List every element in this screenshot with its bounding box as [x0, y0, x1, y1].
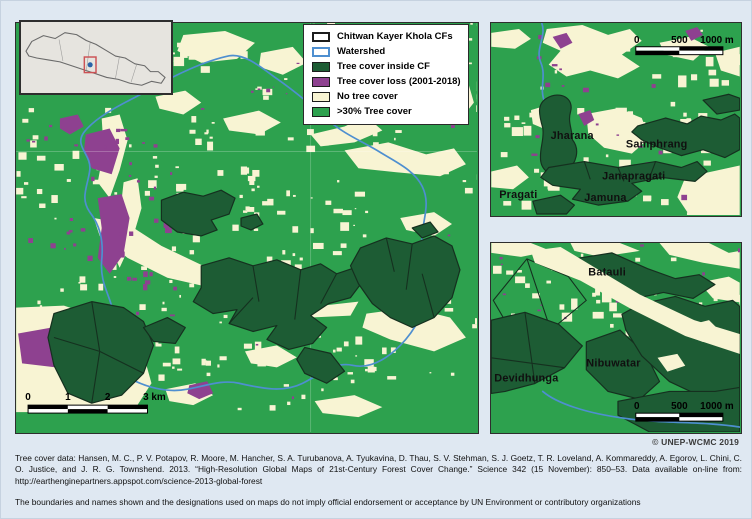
- tree-inside-cf-swatch: [312, 62, 330, 72]
- place-label-batauli: Batauli: [588, 267, 626, 279]
- disclaimer-text: The boundaries and names shown and the d…: [15, 497, 742, 507]
- legend-label: Chitwan Kayer Khola CFs: [337, 32, 453, 42]
- place-label-devidhunga: Devidhunga: [494, 373, 559, 385]
- scale-label: 0: [634, 401, 640, 412]
- legend-item-no-tree: No tree cover: [312, 92, 460, 102]
- tree-loss-swatch: [312, 77, 330, 87]
- place-label-jharana: Jharana: [551, 130, 595, 142]
- place-label-nibuwatar: Nibuwatar: [586, 358, 641, 370]
- scale-label: 500: [671, 401, 688, 412]
- legend-label: >30% Tree cover: [337, 107, 412, 117]
- legend-label: Watershed: [337, 47, 385, 57]
- cf-outline-swatch: [312, 32, 330, 42]
- no-tree-swatch: [312, 92, 330, 102]
- legend: Chitwan Kayer Khola CFs Watershed Tree c…: [303, 24, 469, 125]
- place-label-pragati: Pragati: [499, 189, 537, 201]
- legend-item-watershed: Watershed: [312, 47, 460, 57]
- scale-label: 2: [105, 392, 111, 403]
- place-label-samphrang: Samphrang: [626, 139, 688, 151]
- data-credit-text: Tree cover data: Hansen, M. C., P. V. Po…: [15, 453, 742, 487]
- watershed-swatch: [312, 47, 330, 57]
- place-label-jamuna: Jamuna: [584, 192, 627, 204]
- scale-label: 1000 m: [700, 401, 734, 412]
- study-area-dot: [88, 62, 93, 67]
- scale-label: 1000 m: [700, 35, 734, 46]
- scale-label: 500: [671, 35, 688, 46]
- legend-item-tree-inside-cf: Tree cover inside CF: [312, 62, 460, 72]
- inset-top-canvas: Jharana Samphrang Janapragati Pragati Ja…: [491, 23, 740, 215]
- copyright-notice: © UNEP-WCMC 2019: [652, 437, 739, 447]
- legend-item-tree-loss: Tree cover loss (2001-2018): [312, 77, 460, 87]
- scale-label: 0: [634, 35, 640, 46]
- legend-label: Tree cover loss (2001-2018): [337, 77, 461, 87]
- nepal-locator-canvas: [21, 22, 171, 93]
- inset-map-top: Jharana Samphrang Janapragati Pragati Ja…: [490, 22, 742, 217]
- inset-map-bottom: Batauli Nibuwatar Devidhunga 0 500 1000 …: [490, 242, 742, 434]
- scale-label: 0: [25, 392, 31, 403]
- scale-label: 1: [65, 392, 71, 403]
- place-label-janapragati: Janapragati: [602, 170, 665, 182]
- inset-bottom-canvas: Batauli Nibuwatar Devidhunga 0 500 1000 …: [491, 243, 740, 432]
- legend-item-tree-cover: >30% Tree cover: [312, 107, 460, 117]
- tree-cover-swatch: [312, 107, 330, 117]
- legend-label: Tree cover inside CF: [337, 62, 430, 72]
- legend-label: No tree cover: [337, 92, 398, 102]
- nepal-locator-map: [19, 20, 173, 95]
- legend-item-cfs: Chitwan Kayer Khola CFs: [312, 32, 460, 42]
- scale-label: 3 km: [143, 392, 166, 403]
